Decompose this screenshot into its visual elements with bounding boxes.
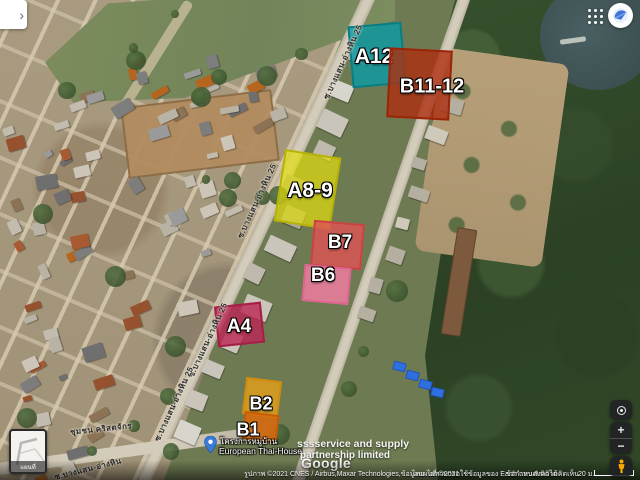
plot-label-B7: B7 (328, 232, 352, 254)
poi-name-line2: European Thai-House (219, 446, 302, 456)
chevron-right-icon: › (19, 7, 24, 23)
earth-logo-icon (612, 7, 629, 24)
pegman-button[interactable] (610, 456, 632, 477)
minimap-label: แผนที่ (11, 461, 45, 472)
my-location-button[interactable] (610, 400, 632, 420)
country-label: ไทย (412, 469, 424, 480)
plot-overlays-layer: A12B11-12A8-9B7B6A4B2B1 (0, 0, 640, 480)
location-target-icon (617, 406, 626, 415)
feedback-link[interactable]: ส่งความคิดเห็น (533, 469, 579, 480)
apps-grid-button[interactable] (586, 7, 606, 27)
plot-label-A4: A4 (227, 316, 251, 338)
expand-panel-button[interactable]: › (0, 0, 27, 29)
pegman-icon (617, 459, 626, 474)
plot-label-A8-9: A8-9 (287, 179, 333, 203)
plot-label-A12: A12 (355, 45, 394, 69)
place-pin-icon[interactable] (204, 436, 217, 453)
earth-logo-button[interactable] (608, 3, 633, 28)
satellite-map-canvas[interactable]: A12B11-12A8-9B7B6A4B2B1 ซ.บางแสน-อ่างหิน… (0, 0, 640, 480)
zoom-controls: + − (610, 422, 632, 454)
plot-label-B11-12: B11-12 (400, 76, 465, 99)
watermark-line1: sssservice and supply (297, 438, 409, 450)
plot-label-B6: B6 (311, 265, 335, 287)
zoom-out-button[interactable]: − (610, 439, 632, 455)
zoom-in-button[interactable]: + (610, 422, 632, 439)
map-scale-value: 20 ม. (578, 469, 594, 480)
minimap-inset[interactable]: แผนที่ (9, 429, 47, 474)
